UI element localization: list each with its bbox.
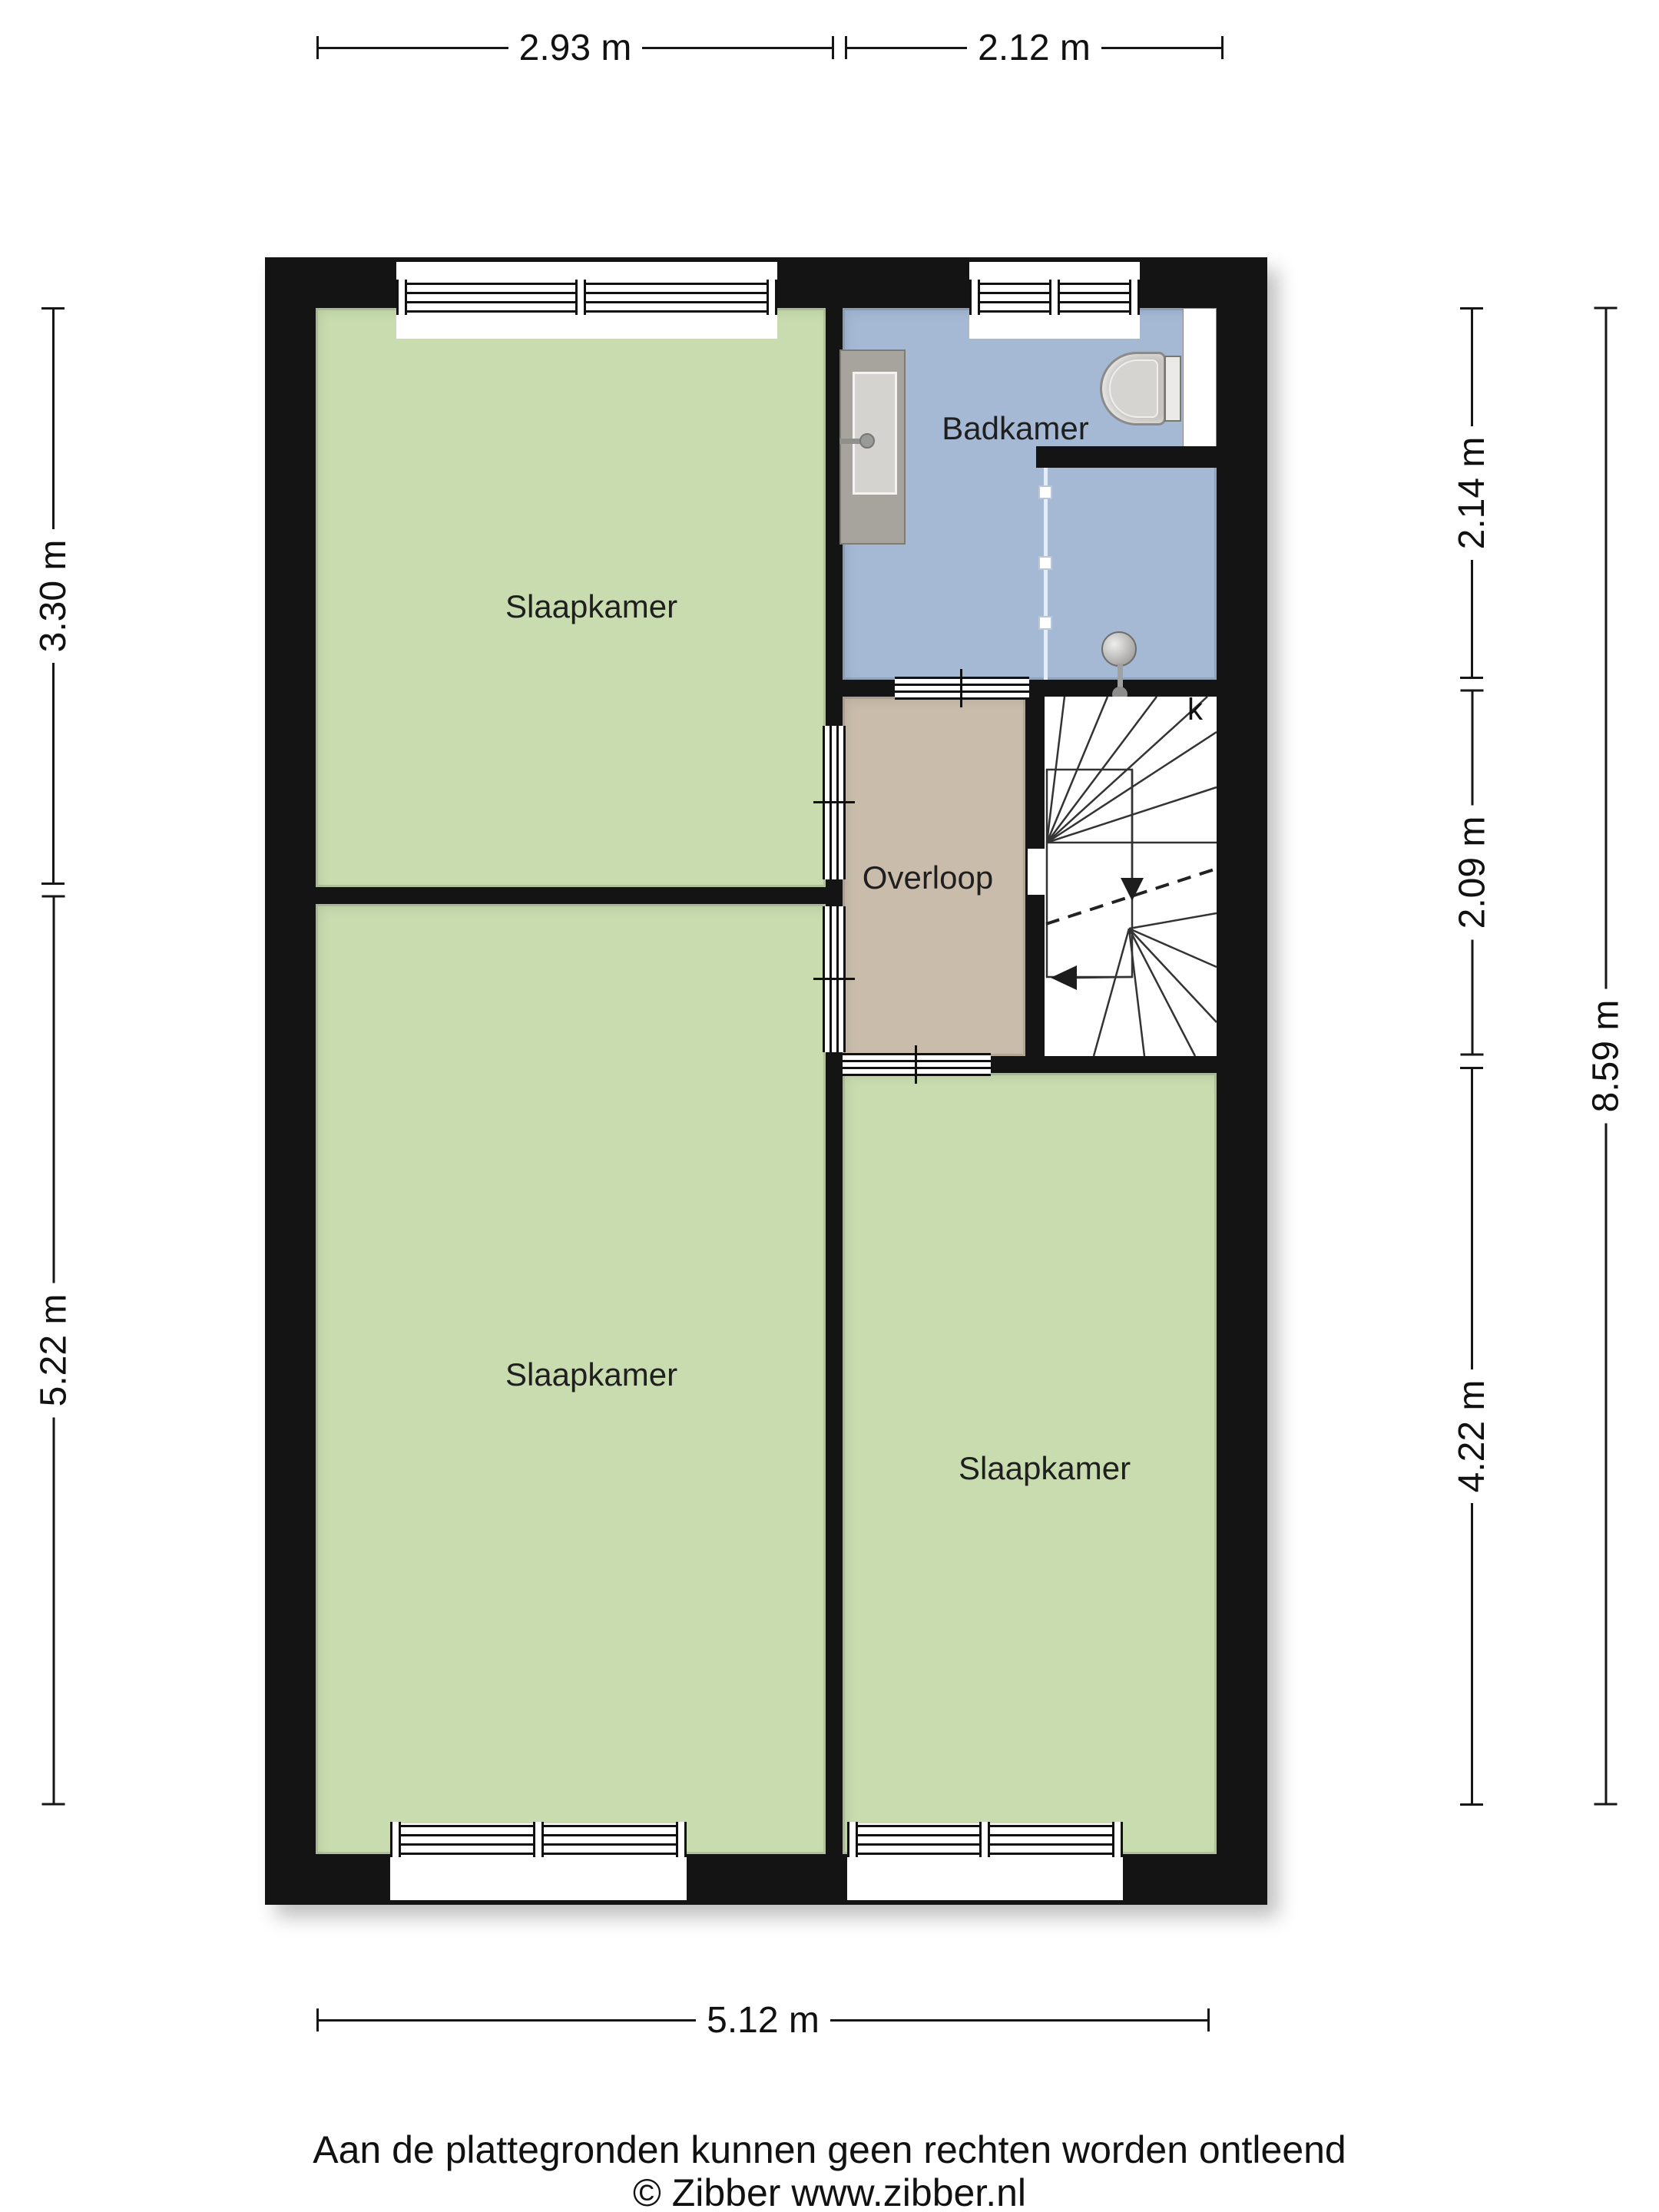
wall-hall-left-mid: [826, 879, 843, 906]
window-post: [390, 1822, 401, 1857]
window-post: [1112, 1822, 1123, 1857]
wall-bathroom-bottom-left: [843, 680, 895, 697]
room-label-bedroom-bottom-left: Slaapkamer: [505, 1356, 677, 1393]
room-label-bedroom-bottom-right: Slaapkamer: [959, 1450, 1131, 1487]
dimension-top-right: 2.12 m: [845, 29, 1224, 66]
shower-head-icon: [1101, 631, 1137, 667]
floorplan-canvas: k Slaapkamer Slaapkamer Slaapkamer Badka…: [0, 0, 1659, 2212]
window-post: [575, 280, 586, 315]
stairs-handrail-gap: [1028, 849, 1045, 895]
dimension-right-landing: 2.09 m: [1454, 690, 1491, 1056]
footer-credit: © Zibber www.zibber.nl: [0, 2171, 1659, 2212]
window-post: [533, 1822, 544, 1857]
faucet-knob-icon: [859, 433, 875, 449]
room-label-bedroom-top-left: Slaapkamer: [505, 588, 677, 625]
stairs-icon: [1045, 697, 1217, 1056]
door-tick: [915, 1045, 917, 1084]
dimension-left-upper: 3.30 m: [35, 307, 71, 885]
wall-outer-left: [265, 257, 316, 1905]
dimension-left-lower: 5.22 m: [35, 896, 72, 1806]
sink-basin-icon: [853, 372, 897, 495]
wall-hall-left-lower: [826, 1052, 843, 1854]
window-post: [676, 1822, 687, 1857]
dimension-top-left: 2.93 m: [316, 29, 834, 66]
shower-screen-hinge: [1038, 485, 1052, 499]
door-tick: [813, 978, 855, 980]
door-tick: [960, 669, 962, 707]
bathroom-niche: [1183, 308, 1217, 462]
room-label-bathroom: Badkamer: [942, 410, 1088, 447]
window-post: [1129, 280, 1140, 315]
toilet-tank-icon: [1164, 356, 1181, 422]
window-post: [847, 1822, 858, 1857]
window-glass: [399, 283, 774, 313]
window-post: [969, 280, 980, 315]
wall-bedroom-divider: [316, 887, 826, 904]
dimension-right-total: 8.59 m: [1588, 307, 1624, 1806]
dimension-right-bedroom: 4.22 m: [1453, 1067, 1490, 1806]
footer-disclaimer: Aan de plattegronden kunnen geen rechten…: [0, 2128, 1659, 2172]
dimension-right-bathroom: 2.14 m: [1453, 307, 1490, 679]
wall-outer-right: [1217, 257, 1267, 1905]
room-label-landing: Overloop: [863, 859, 993, 896]
wall-shower-stub: [1036, 446, 1217, 468]
shower-screen-hinge: [1038, 616, 1052, 630]
window-post: [979, 1822, 990, 1857]
dimension-bottom: 5.12 m: [316, 2002, 1210, 2038]
door-tick: [813, 801, 855, 803]
window-post: [767, 280, 777, 315]
wall-landing-bottom: [991, 1056, 1217, 1073]
window-post: [1049, 280, 1060, 315]
shower-screen: [1044, 468, 1048, 680]
shower-screen-hinge: [1038, 556, 1052, 570]
window-post: [396, 280, 407, 315]
stairs-closet-label: k: [1187, 693, 1203, 727]
